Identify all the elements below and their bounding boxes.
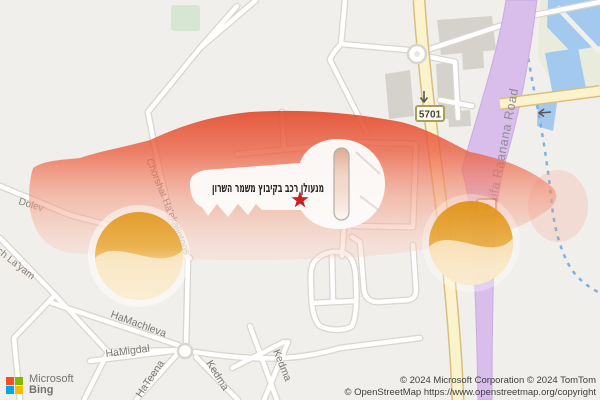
map-canvas[interactable]: Haifa Raanana Road Dolev ch La'yam Chors… [0, 0, 600, 400]
attribution-line2[interactable]: © OpenStreetMap https://www.openstreetma… [345, 387, 597, 399]
car-wheel-left [88, 205, 190, 307]
map-attribution: © 2024 Microsoft Corporation © 2024 TomT… [345, 375, 597, 398]
poi-label: מנעולן רכב בקיבוץ משמר השרון [212, 180, 324, 195]
bing-text: Bing [29, 384, 53, 396]
attribution-line1: © 2024 Microsoft Corporation © 2024 TomT… [345, 375, 597, 387]
route-shield-5701: 5701 [416, 106, 444, 121]
microsoft-logo-icon [6, 377, 23, 394]
car-wheel-right [422, 194, 520, 292]
bing-logo[interactable]: Microsoft Bing [6, 374, 74, 396]
keyhole-slot [334, 148, 349, 220]
bing-wordmark: Microsoft Bing [29, 374, 74, 396]
map-screenshot: Haifa Raanana Road Dolev ch La'yam Chors… [0, 0, 600, 400]
svg-text:5701: 5701 [419, 110, 442, 121]
